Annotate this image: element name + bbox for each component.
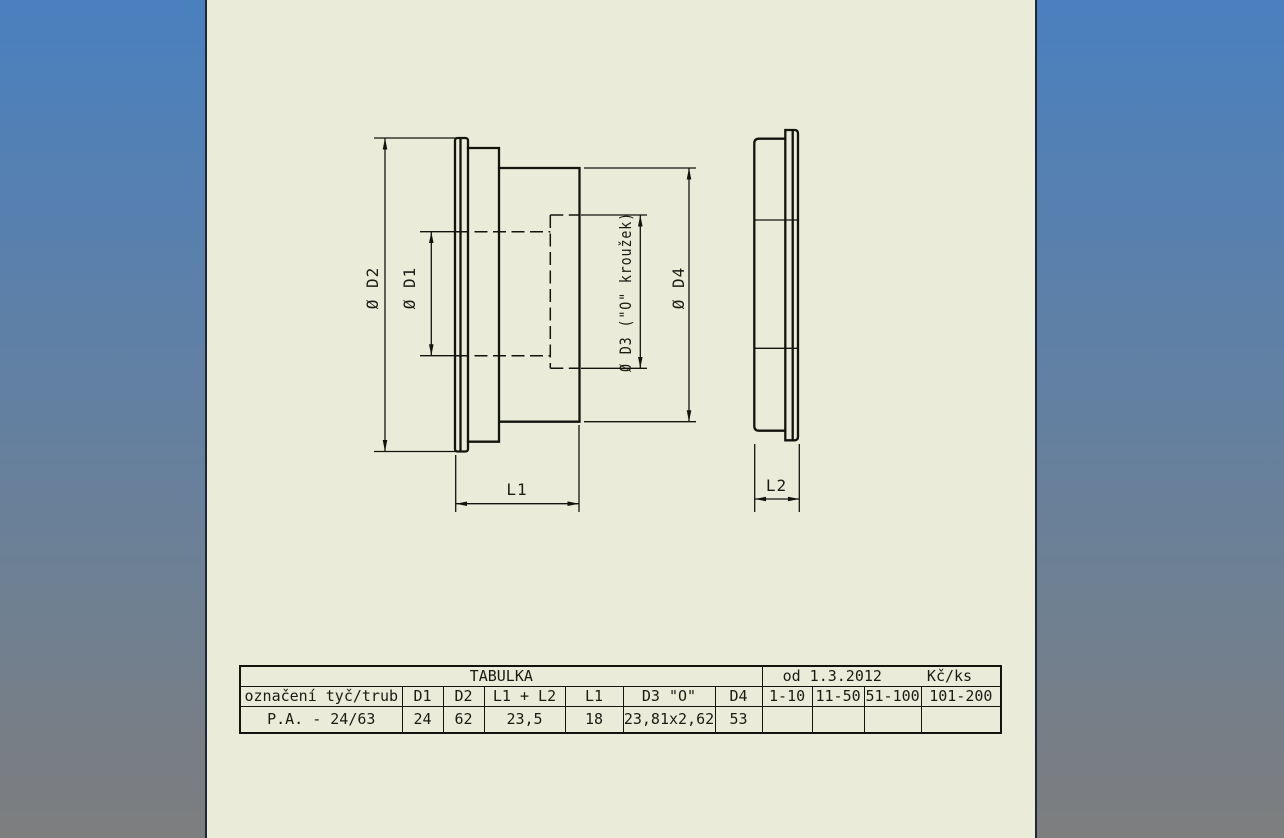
col-header-d2: D2 (443, 687, 484, 707)
price-unit: Kč/ks (927, 669, 972, 684)
l1-label: L1 (506, 480, 527, 499)
cell-l1l2: 23,5 (484, 707, 565, 734)
side-rim-outline (785, 130, 798, 440)
d3-label: Ø D3 ("O" kroužek) (616, 212, 635, 372)
price-header-cell: od 1.3.2012 Kč/ks (762, 666, 1001, 687)
col-header-l1: L1 (565, 687, 623, 707)
main-view (420, 138, 580, 452)
cell-l1: 18 (565, 707, 623, 734)
cell-d1: 24 (402, 707, 443, 734)
side-view (754, 130, 798, 440)
col-header-d4: D4 (715, 687, 762, 707)
col-header-d3: D3 "O" (623, 687, 715, 707)
col-header-qty-1-10: 1-10 (762, 687, 812, 707)
price-valid-from: od 1.3.2012 (783, 669, 882, 684)
side-tangent-lines (754, 220, 798, 348)
col-header-qty-101-200: 101-200 (921, 687, 1001, 707)
dimension-d3: Ø D3 ("O" kroužek) (581, 212, 647, 372)
dimension-d1: Ø D1 (400, 232, 431, 356)
col-header-d1: D1 (402, 687, 443, 707)
cell-price-11-50 (812, 707, 864, 734)
bore-extension-lines (420, 232, 456, 356)
tabulka-table: TABULKA od 1.3.2012 Kč/ks označení tyč/t… (239, 665, 1002, 734)
cell-d3: 23,81x2,62 (623, 707, 715, 734)
groove-hidden-lines (550, 215, 579, 368)
table-row: P.A. - 24/63 24 62 23,5 18 23,81x2,62 53 (240, 707, 1001, 734)
bore-hidden-lines (456, 232, 550, 356)
table-title: TABULKA (240, 666, 762, 687)
l2-label: L2 (766, 476, 787, 495)
body-outline (468, 148, 580, 442)
d1-label: Ø D1 (400, 267, 419, 310)
d2-label: Ø D2 (363, 267, 382, 310)
cell-price-1-10 (762, 707, 812, 734)
cell-d4: 53 (715, 707, 762, 734)
dimension-l2: L2 (755, 444, 800, 512)
d3-extension-lines (581, 215, 647, 368)
d4-label: Ø D4 (669, 267, 688, 310)
drawing-sheet: Ø D2 Ø D1 Ø D3 ("O" kroužek) Ø D4 L1 (205, 0, 1037, 838)
col-header-qty-51-100: 51-100 (864, 687, 921, 707)
cell-designation: P.A. - 24/63 (240, 707, 402, 734)
col-header-l1l2: L1 + L2 (484, 687, 565, 707)
col-header-designation: označení tyč/trub (240, 687, 402, 707)
col-header-qty-11-50: 11-50 (812, 687, 864, 707)
cell-price-51-100 (864, 707, 921, 734)
app-background: Ø D2 Ø D1 Ø D3 ("O" kroužek) Ø D4 L1 (0, 0, 1284, 838)
side-body-outline (754, 139, 785, 431)
cell-d2: 62 (443, 707, 484, 734)
cell-price-101-200 (921, 707, 1001, 734)
dimension-l1: L1 (456, 425, 579, 512)
